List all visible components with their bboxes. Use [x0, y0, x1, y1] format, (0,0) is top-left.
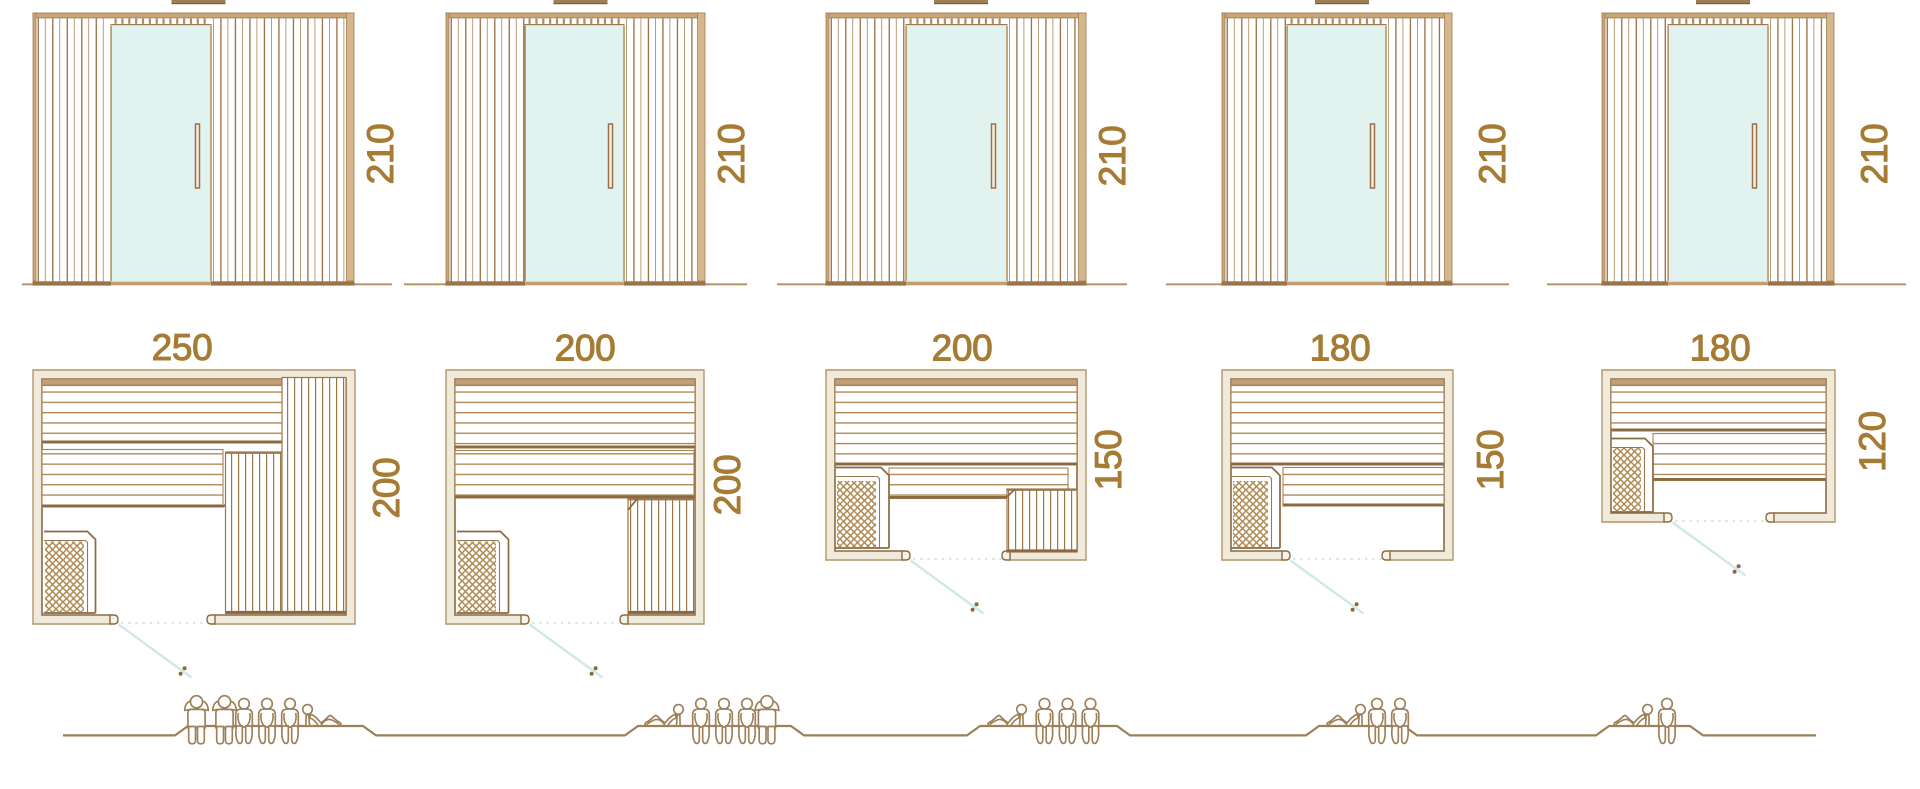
svg-text:210: 210	[360, 124, 401, 185]
svg-text:200: 200	[707, 455, 748, 516]
svg-text:150: 150	[1088, 430, 1129, 491]
svg-text:210: 210	[1854, 124, 1895, 185]
svg-text:120: 120	[1852, 411, 1893, 472]
svg-text:210: 210	[1092, 126, 1133, 187]
svg-text:150: 150	[1470, 430, 1511, 491]
svg-text:200: 200	[932, 328, 993, 369]
svg-text:200: 200	[555, 328, 616, 369]
svg-text:250: 250	[152, 327, 213, 368]
svg-text:180: 180	[1690, 328, 1751, 369]
svg-text:180: 180	[1310, 328, 1371, 369]
svg-text:210: 210	[711, 124, 752, 185]
svg-text:200: 200	[366, 458, 407, 519]
svg-text:210: 210	[1472, 124, 1513, 185]
